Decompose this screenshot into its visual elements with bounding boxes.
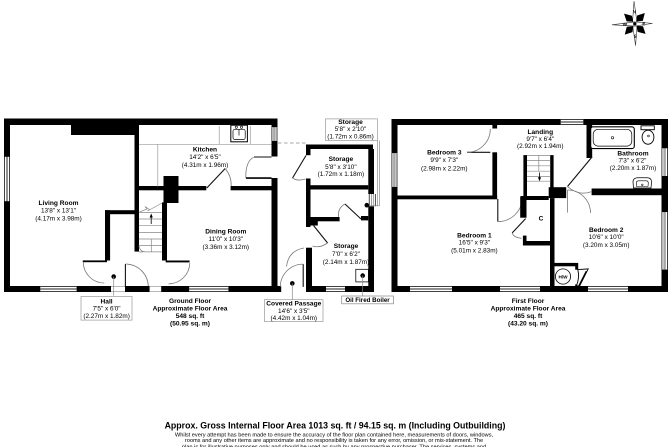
svg-text:Oil Fired Boiler: Oil Fired Boiler [345,297,390,304]
svg-text:H/W: H/W [558,274,568,279]
svg-text:Bathroom: Bathroom [617,150,648,157]
svg-text:5'8" x 3'10": 5'8" x 3'10" [325,164,357,171]
svg-text:Bedroom 1: Bedroom 1 [457,233,492,240]
svg-text:(2.14m x 1.87m): (2.14m x 1.87m) [323,259,370,266]
svg-text:13'8" x 13'1": 13'8" x 13'1" [41,208,76,215]
svg-text:9'7" x 6'4": 9'7" x 6'4" [526,136,554,143]
svg-text:Landing: Landing [527,129,553,136]
svg-text:465 sq. ft: 465 sq. ft [514,313,543,320]
svg-text:(2.20m x 1.87m): (2.20m x 1.87m) [610,165,657,172]
svg-text:(4.31m x 1.96m): (4.31m x 1.96m) [182,162,229,169]
svg-text:Approximate Floor Area: Approximate Floor Area [153,306,228,313]
svg-text:11'0" x 10'3": 11'0" x 10'3" [209,236,244,243]
svg-text:(3.36m x 3.12m): (3.36m x 3.12m) [203,244,250,251]
svg-text:(1.72m x 1.18m): (1.72m x 1.18m) [318,171,365,178]
svg-text:(43.20 sq. m): (43.20 sq. m) [508,321,548,328]
svg-text:rooms and any other items are: rooms and any other items are approximat… [185,438,483,444]
svg-text:Covered Passage: Covered Passage [266,301,321,308]
svg-text:(2.92m x 1.94m): (2.92m x 1.94m) [517,143,564,150]
svg-text:(4.17m x 3.98m): (4.17m x 3.98m) [35,215,82,222]
svg-text:(4.42m x 1.04m): (4.42m x 1.04m) [271,315,318,322]
svg-text:C: C [539,215,544,222]
svg-text:(3.20m x 3.05m): (3.20m x 3.05m) [583,242,630,249]
svg-text:7'3" x 6'2": 7'3" x 6'2" [619,157,647,164]
svg-text:5'8" x 2'10": 5'8" x 2'10" [335,126,367,133]
svg-text:7'5" x 6'0": 7'5" x 6'0" [93,305,121,312]
svg-text:10'6" x 10'0": 10'6" x 10'0" [589,234,624,241]
svg-text:E: E [642,21,645,26]
svg-text:7'0" x 6'2": 7'0" x 6'2" [332,251,360,258]
svg-text:Ground Floor: Ground Floor [169,298,212,305]
svg-text:14'6" x 3'5": 14'6" x 3'5" [278,308,310,315]
svg-text:Living Room: Living Room [39,200,79,207]
svg-text:S: S [634,34,637,39]
svg-text:Approximate Floor Area: Approximate Floor Area [491,306,566,313]
svg-text:Storage: Storage [334,243,359,250]
svg-text:Bedroom 3: Bedroom 3 [427,149,462,156]
svg-text:(2.98m x 2.22m): (2.98m x 2.22m) [421,165,468,172]
svg-text:Bedroom 2: Bedroom 2 [589,227,624,234]
svg-text:548 sq. ft: 548 sq. ft [176,313,205,320]
svg-text:Storage: Storage [329,156,354,163]
svg-text:9'9" x 7'3": 9'9" x 7'3" [430,157,458,164]
svg-text:(5.01m x 2.83m): (5.01m x 2.83m) [451,247,498,254]
svg-text:Dining Room: Dining Room [205,228,246,235]
svg-text:16'5" x 9'3": 16'5" x 9'3" [459,240,491,247]
svg-text:N: N [633,9,637,14]
svg-text:Approx. Gross Internal Floor A: Approx. Gross Internal Floor Area 1013 s… [165,421,506,431]
svg-text:(1.72m x 0.86m): (1.72m x 0.86m) [327,133,374,140]
svg-text:(50.95 sq. m): (50.95 sq. m) [170,321,210,328]
svg-text:14'2" x 6'5": 14'2" x 6'5" [189,154,221,161]
svg-text:(2.27m x 1.82m): (2.27m x 1.82m) [83,313,130,320]
svg-text:First Floor: First Floor [512,298,545,305]
svg-text:Kitchen: Kitchen [193,147,217,154]
